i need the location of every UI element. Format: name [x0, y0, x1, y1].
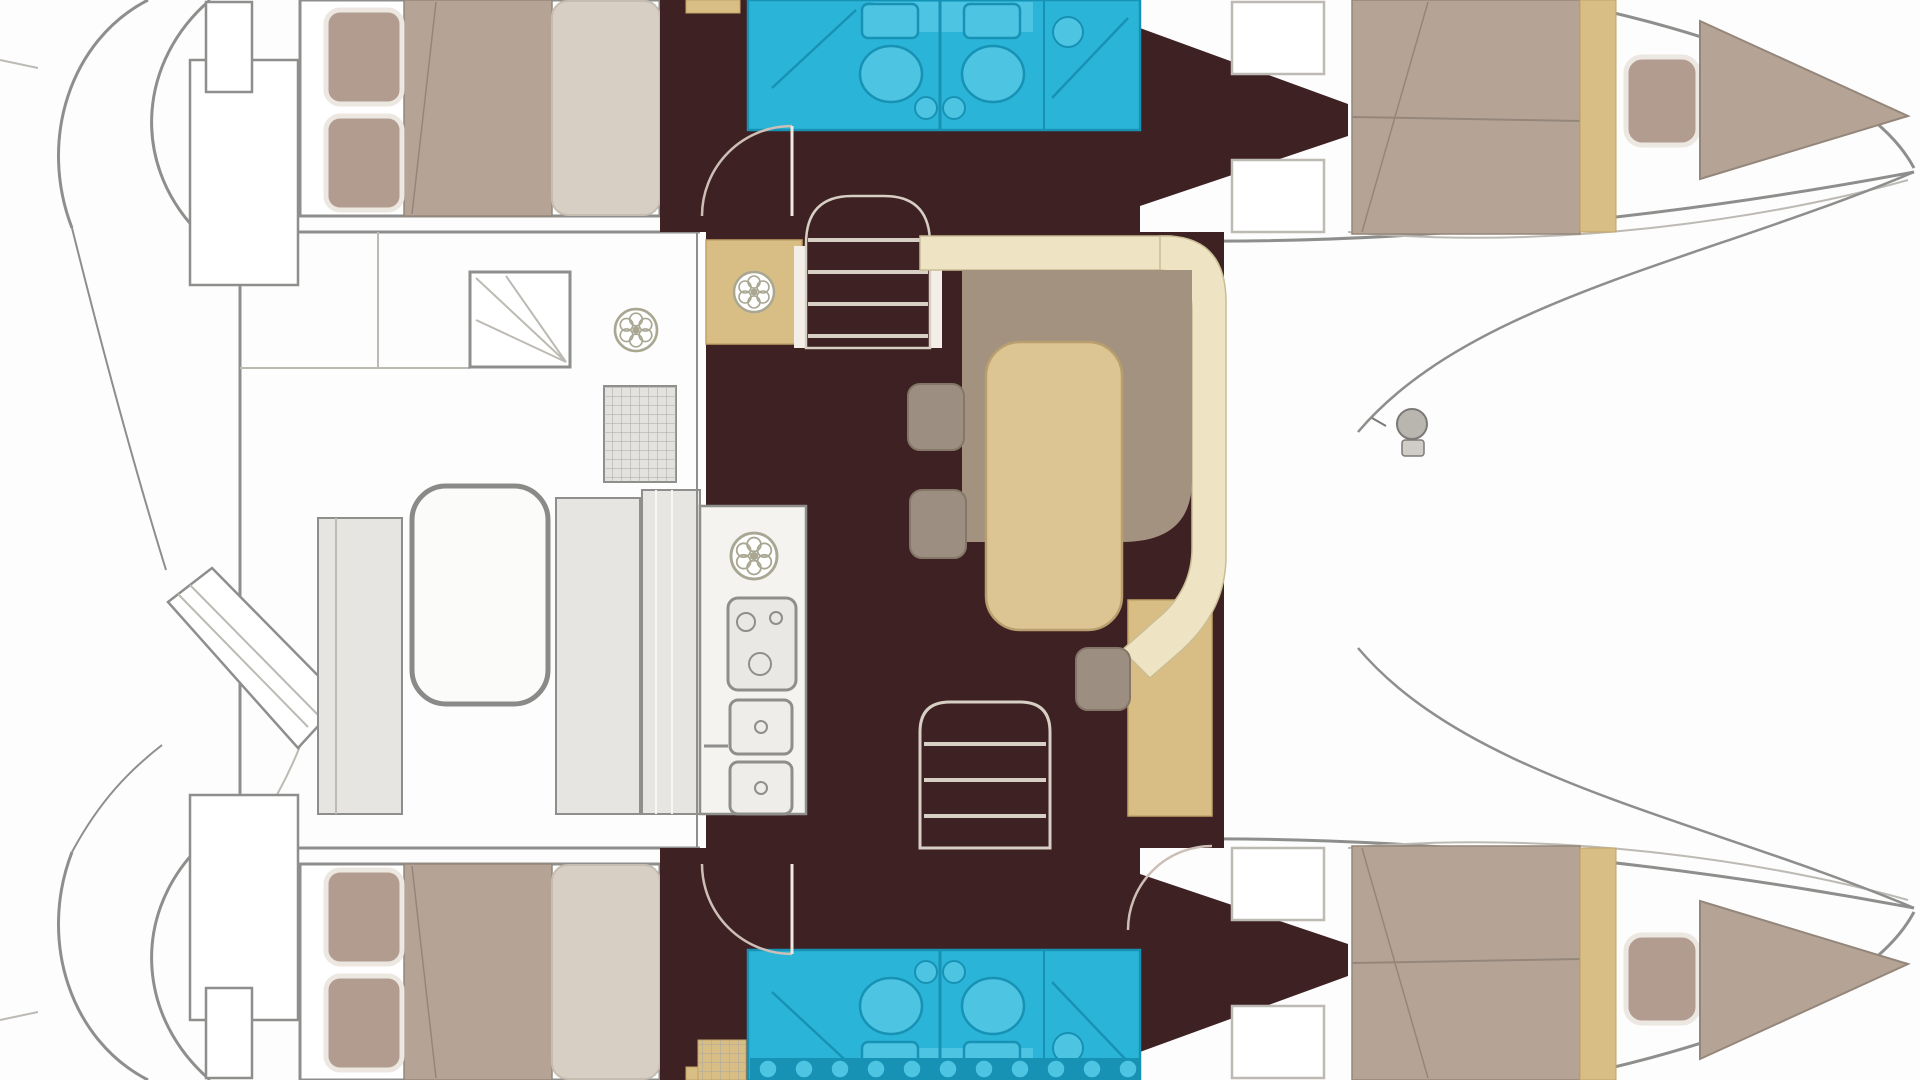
pillow	[326, 870, 402, 964]
pillow	[1626, 935, 1698, 1023]
teak-strip	[1580, 0, 1616, 232]
toilet-bowl	[860, 46, 922, 102]
teak-strip	[1580, 848, 1616, 1080]
aft-berth-duvet	[552, 1, 660, 215]
basin	[915, 97, 937, 119]
stool	[1076, 648, 1130, 710]
winch-icon	[1397, 409, 1427, 439]
deck-hatch	[1232, 160, 1324, 232]
toilet-bowl	[860, 978, 922, 1034]
basin	[943, 961, 965, 983]
stove	[728, 598, 796, 690]
cockpit-bench-right	[556, 498, 640, 814]
cabinet	[206, 2, 252, 92]
aft-berth-mattress	[404, 864, 552, 1080]
deck-hatch	[1232, 848, 1324, 920]
toilet-tank	[862, 4, 918, 38]
companionway-starboard	[920, 702, 1050, 848]
salon	[700, 196, 1226, 930]
toilet-tank	[964, 4, 1020, 38]
deck-vent-icon	[615, 309, 657, 351]
pillow	[326, 10, 402, 104]
dinette-table	[986, 342, 1122, 630]
dinette-bench-top	[920, 236, 1172, 270]
pillow	[1626, 57, 1698, 145]
catamaran-floorplan	[0, 0, 1920, 1080]
stool	[908, 384, 964, 450]
companionway-port	[794, 196, 942, 348]
cockpit-bench-left	[318, 518, 402, 814]
cleat-icon	[1402, 440, 1424, 456]
teak-strip	[686, 0, 740, 13]
floorplan-canvas	[0, 0, 1920, 1080]
pillow	[326, 116, 402, 210]
cockpit-table	[412, 486, 548, 704]
toilet-bowl	[962, 978, 1024, 1034]
deck-hatch	[1232, 2, 1324, 74]
galley	[700, 506, 806, 814]
cabinet	[190, 60, 298, 285]
oven-drawer	[730, 762, 792, 814]
stool	[910, 490, 966, 558]
aft-berth-mattress	[404, 0, 552, 216]
basin	[915, 961, 937, 983]
teak-grate-grid	[698, 1040, 746, 1080]
pillow	[326, 976, 402, 1070]
aft-berth-duvet	[552, 865, 660, 1079]
deck-hatch-icon	[734, 272, 774, 312]
shower-drain	[1053, 17, 1083, 47]
cabinet	[206, 988, 252, 1078]
sink-icon	[731, 533, 777, 579]
basin	[943, 97, 965, 119]
tiled-band	[750, 1058, 1140, 1080]
oven-drawer	[730, 700, 792, 754]
toilet-bowl	[962, 46, 1024, 102]
deck-hatch	[1232, 1006, 1324, 1078]
cabinet	[190, 795, 298, 1020]
grated-seat-grid	[604, 386, 676, 482]
